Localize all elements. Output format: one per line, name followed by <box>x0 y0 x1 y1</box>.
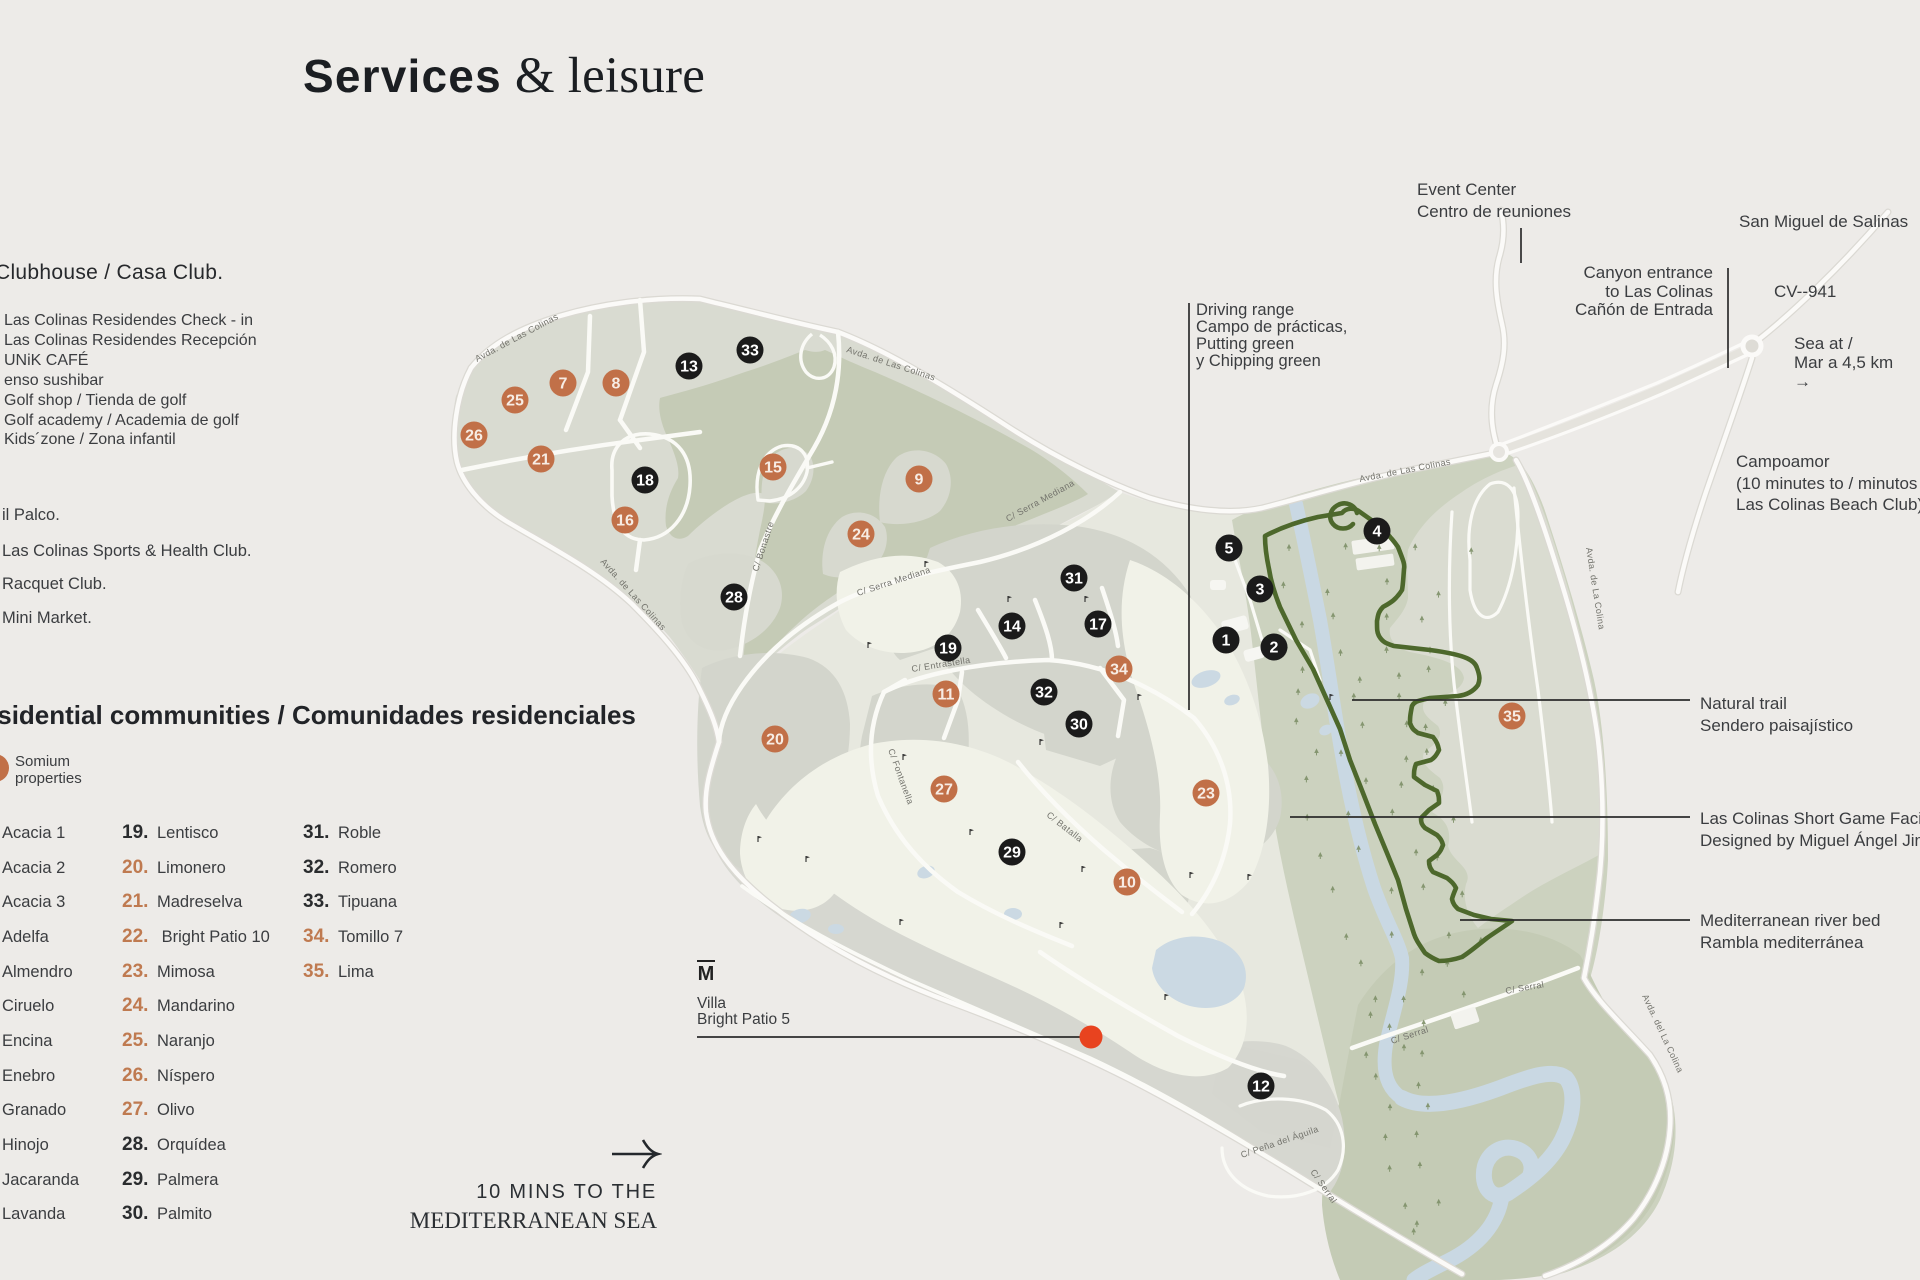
svg-text:11: 11 <box>938 687 955 704</box>
svg-text:19: 19 <box>939 641 957 658</box>
svg-text:21: 21 <box>532 452 550 469</box>
svg-text:13: 13 <box>680 359 698 376</box>
svg-text:2: 2 <box>1270 640 1279 657</box>
svg-text:17: 17 <box>1089 617 1107 634</box>
svg-text:31: 31 <box>1065 571 1083 588</box>
svg-text:4: 4 <box>1373 524 1382 541</box>
svg-text:20: 20 <box>766 732 784 749</box>
svg-text:14: 14 <box>1003 619 1021 636</box>
svg-text:16: 16 <box>616 513 634 530</box>
svg-text:23: 23 <box>1197 786 1215 803</box>
svg-text:28: 28 <box>725 590 743 607</box>
svg-text:32: 32 <box>1035 685 1053 702</box>
svg-text:27: 27 <box>935 782 953 799</box>
svg-text:25: 25 <box>506 393 524 410</box>
svg-text:9: 9 <box>915 472 924 489</box>
svg-text:8: 8 <box>612 376 621 393</box>
svg-text:12: 12 <box>1252 1079 1270 1096</box>
svg-text:10: 10 <box>1118 875 1136 892</box>
svg-text:7: 7 <box>559 376 568 393</box>
svg-text:35: 35 <box>1503 709 1521 726</box>
svg-text:15: 15 <box>764 460 782 477</box>
svg-text:24: 24 <box>852 527 870 544</box>
svg-text:18: 18 <box>636 473 654 490</box>
svg-text:30: 30 <box>1070 717 1088 734</box>
svg-text:26: 26 <box>465 428 483 445</box>
svg-text:34: 34 <box>1110 662 1128 679</box>
svg-text:1: 1 <box>1222 633 1231 650</box>
svg-text:3: 3 <box>1256 582 1265 599</box>
svg-text:33: 33 <box>741 343 759 360</box>
svg-text:5: 5 <box>1225 541 1234 558</box>
svg-text:29: 29 <box>1003 845 1021 862</box>
